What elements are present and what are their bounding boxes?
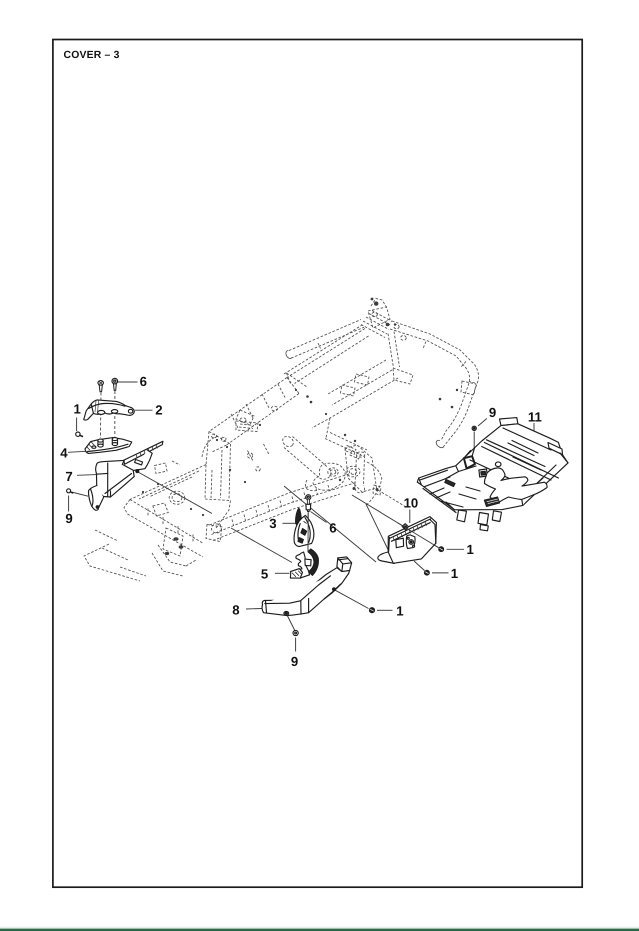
svg-text:3: 3 — [269, 516, 276, 531]
svg-text:1: 1 — [467, 542, 474, 557]
svg-text:10: 10 — [404, 496, 419, 511]
svg-text:7: 7 — [65, 469, 72, 484]
svg-text:1: 1 — [396, 603, 403, 618]
svg-text:9: 9 — [65, 511, 72, 526]
svg-text:8: 8 — [232, 602, 239, 617]
svg-text:11: 11 — [528, 409, 542, 424]
svg-text:4: 4 — [60, 445, 68, 460]
svg-text:COVER – 3: COVER – 3 — [64, 50, 120, 61]
svg-text:9: 9 — [291, 654, 298, 669]
svg-text:6: 6 — [140, 374, 147, 389]
svg-text:6: 6 — [329, 520, 336, 535]
svg-text:1: 1 — [451, 566, 458, 581]
svg-text:1: 1 — [74, 402, 81, 417]
svg-text:9: 9 — [489, 405, 496, 420]
svg-text:2: 2 — [155, 403, 162, 418]
svg-text:5: 5 — [261, 567, 268, 582]
